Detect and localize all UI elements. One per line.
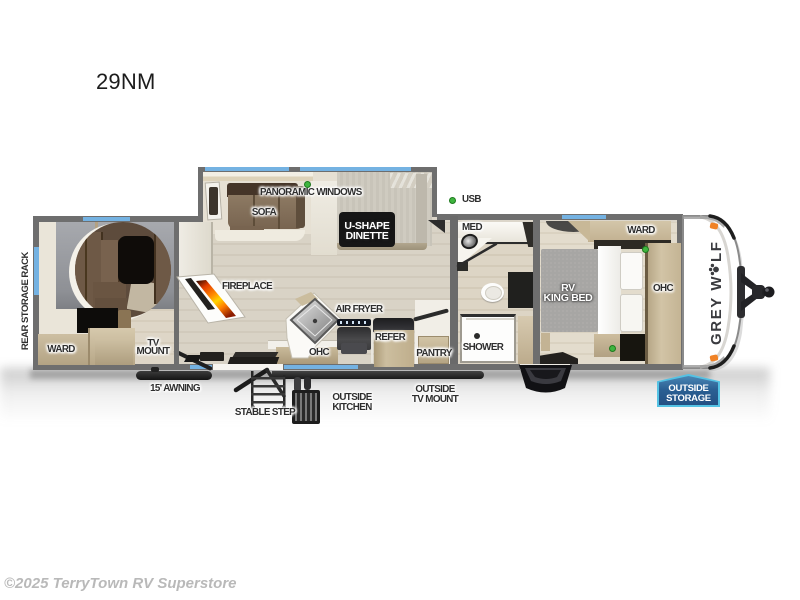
svg-text:GREY W: GREY W [708,275,725,345]
svg-text:LF: LF [708,240,725,262]
